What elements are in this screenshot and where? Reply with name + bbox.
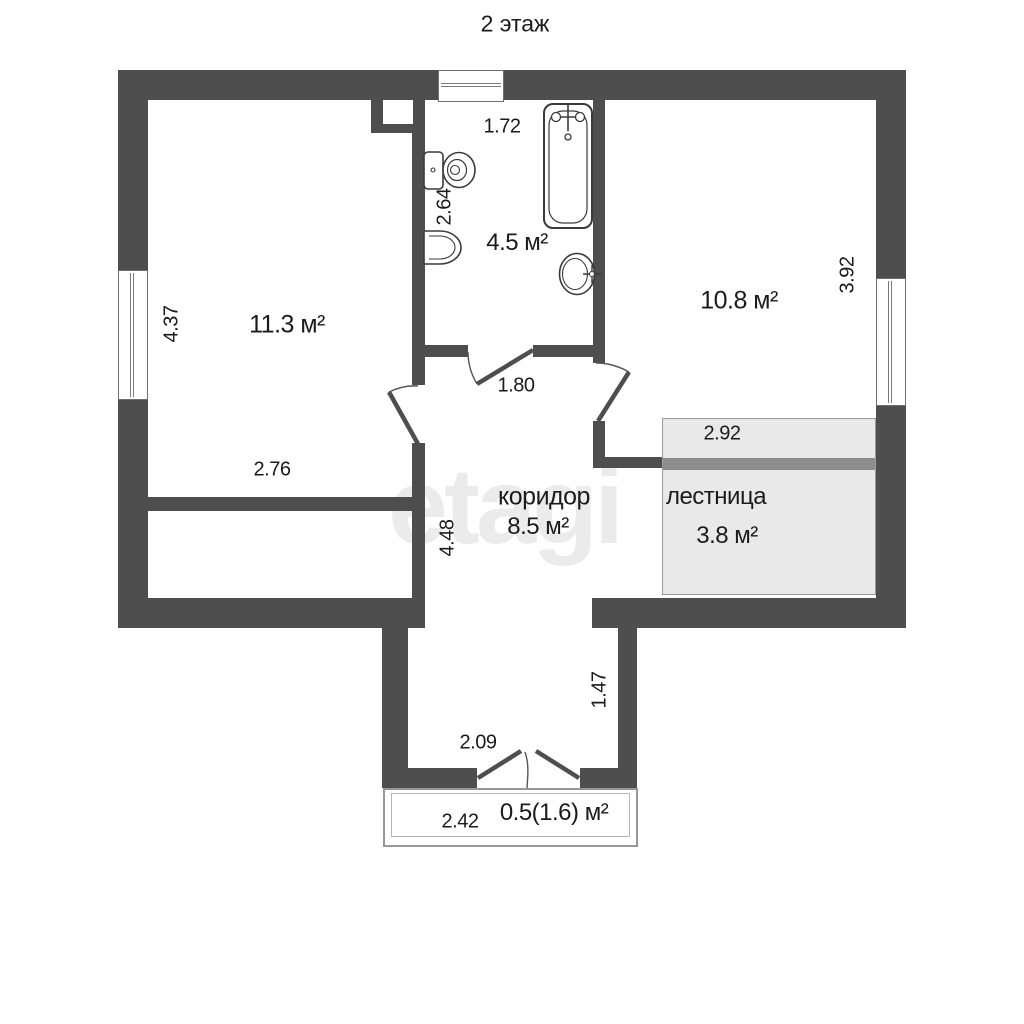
room1-area-label: 11.3 м² xyxy=(249,311,325,340)
dim-room2-depth: 3.92 xyxy=(837,257,860,294)
stairs-area-label: 3.8 м² xyxy=(696,522,758,550)
entry-double-door xyxy=(478,751,579,788)
dim-room1-width: 2.76 xyxy=(254,459,291,482)
dim-vestibule-door-width: 2.09 xyxy=(460,732,497,755)
stairs-name-label: лестница xyxy=(666,483,766,511)
room1-door xyxy=(389,386,418,444)
dim-corridor-door-width: 1.80 xyxy=(498,375,535,398)
washbasin-icon xyxy=(560,254,602,295)
room2-area-label: 10.8 м² xyxy=(700,287,778,316)
dim-room1-depth: 4.37 xyxy=(161,306,184,343)
dim-corridor-depth: 4.48 xyxy=(437,520,460,557)
dim-balcony-width: 2.42 xyxy=(442,811,479,834)
corridor-area-label: 8.5 м² xyxy=(507,513,569,541)
dim-bathroom-width: 1.72 xyxy=(484,116,521,139)
sink-icon xyxy=(424,231,461,264)
bathroom-area-label: 4.5 м² xyxy=(486,229,548,257)
dim-vestibule-depth: 1.47 xyxy=(589,672,612,709)
corridor-name-label: коридор xyxy=(498,483,590,512)
toilet-icon xyxy=(424,152,475,189)
room2-door xyxy=(596,363,629,421)
dim-bathroom-depth: 2.64 xyxy=(434,189,457,226)
balcony-area-label: 0.5(1.6) м² xyxy=(500,799,608,827)
dim-stairs-width: 2.92 xyxy=(704,423,741,446)
floor-plan: 2 этаж etagi xyxy=(0,0,1024,1024)
page-title: 2 этаж xyxy=(481,11,550,38)
bathtub-icon xyxy=(544,104,592,228)
plan-linework xyxy=(0,0,1024,1024)
